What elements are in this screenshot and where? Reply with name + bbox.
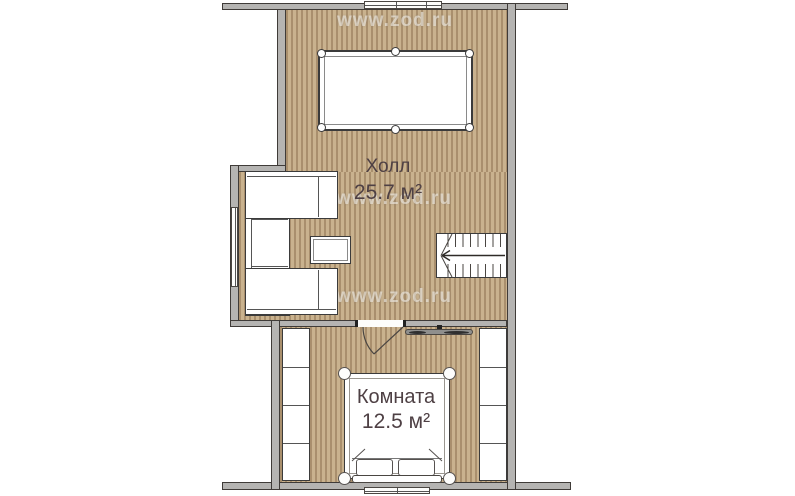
billiard-pocket-top-left (317, 49, 326, 58)
coffee-table-inner-line (313, 239, 348, 261)
window-bottom (364, 487, 430, 494)
window-top-divider-1 (396, 2, 397, 8)
hall-bedroom-wall-right (403, 320, 507, 327)
bedpost-top-left (338, 367, 351, 380)
bed-pillow-right (398, 459, 435, 476)
window-top-sash-line (365, 5, 441, 6)
window-left-sash-line (235, 208, 236, 286)
sofa-arm-top (245, 171, 338, 219)
bed-pillow-left (356, 459, 393, 476)
watermark-lower: www.zod.ru (329, 286, 459, 308)
staircase (436, 233, 507, 278)
sofa-arm-top-backrest-line (247, 176, 336, 177)
wardrobe-left-shelf-1 (283, 367, 309, 368)
clothes-rod-dark-left (409, 331, 426, 334)
billiard-table (318, 50, 473, 131)
clothes-rod-dark-right (444, 331, 469, 334)
floor-plan: www.zod.ru www.zod.ru www.zod.ru (0, 0, 795, 496)
upper-left-wall (277, 9, 286, 172)
window-bottom-divider (397, 488, 398, 493)
window-top-divider-2 (426, 2, 427, 8)
sofa-cushion-divider-1 (251, 219, 288, 220)
hall-bedroom-wall-left (230, 320, 358, 327)
sofa-arm-bottom (245, 268, 338, 315)
bedpost-bottom-right (443, 472, 456, 485)
wardrobe-left-shelf-3 (283, 443, 309, 444)
bed-headboard (352, 475, 442, 483)
wardrobe-right-shelf-2 (480, 405, 506, 406)
bedroom-area-label: 12.5 м² (341, 411, 451, 432)
billiard-pocket-bottom-right (465, 123, 474, 132)
wardrobe-left-shelf-2 (283, 405, 309, 406)
sofa-arm-bottom-divider (318, 270, 319, 310)
wardrobe-left (282, 328, 310, 481)
billiard-pocket-top-mid (391, 47, 400, 56)
billiard-pocket-bottom-left (317, 123, 326, 132)
wardrobe-right-shelf-3 (480, 443, 506, 444)
rod-mount-block (437, 325, 442, 329)
watermark-top: www.zod.ru (330, 10, 460, 32)
hall-label: Холл (338, 157, 438, 176)
bedroom-label: Комната (341, 387, 451, 407)
door-jamb-right (403, 320, 406, 327)
billiard-pocket-top-right (465, 49, 474, 58)
right-wall (507, 3, 516, 490)
sofa-arm-top-divider (318, 176, 319, 217)
bedpost-top-right (443, 367, 456, 380)
door-threshold (358, 320, 403, 327)
sofa-arm-bottom-backrest-line (247, 309, 336, 310)
sofa-cushion-divider-2 (251, 266, 288, 267)
bedpost-bottom-left (338, 472, 351, 485)
coffee-table (310, 236, 351, 264)
wardrobe-right-shelf-1 (480, 367, 506, 368)
window-top (364, 1, 442, 9)
clothes-rod (405, 329, 473, 335)
wardrobe-right (479, 328, 507, 481)
billiard-table-rail-line (324, 56, 467, 125)
window-left (231, 207, 238, 287)
bedroom-left-wall (271, 320, 280, 490)
hall-area-label: 25.7 м² (336, 182, 440, 203)
billiard-pocket-bottom-mid (391, 125, 400, 134)
